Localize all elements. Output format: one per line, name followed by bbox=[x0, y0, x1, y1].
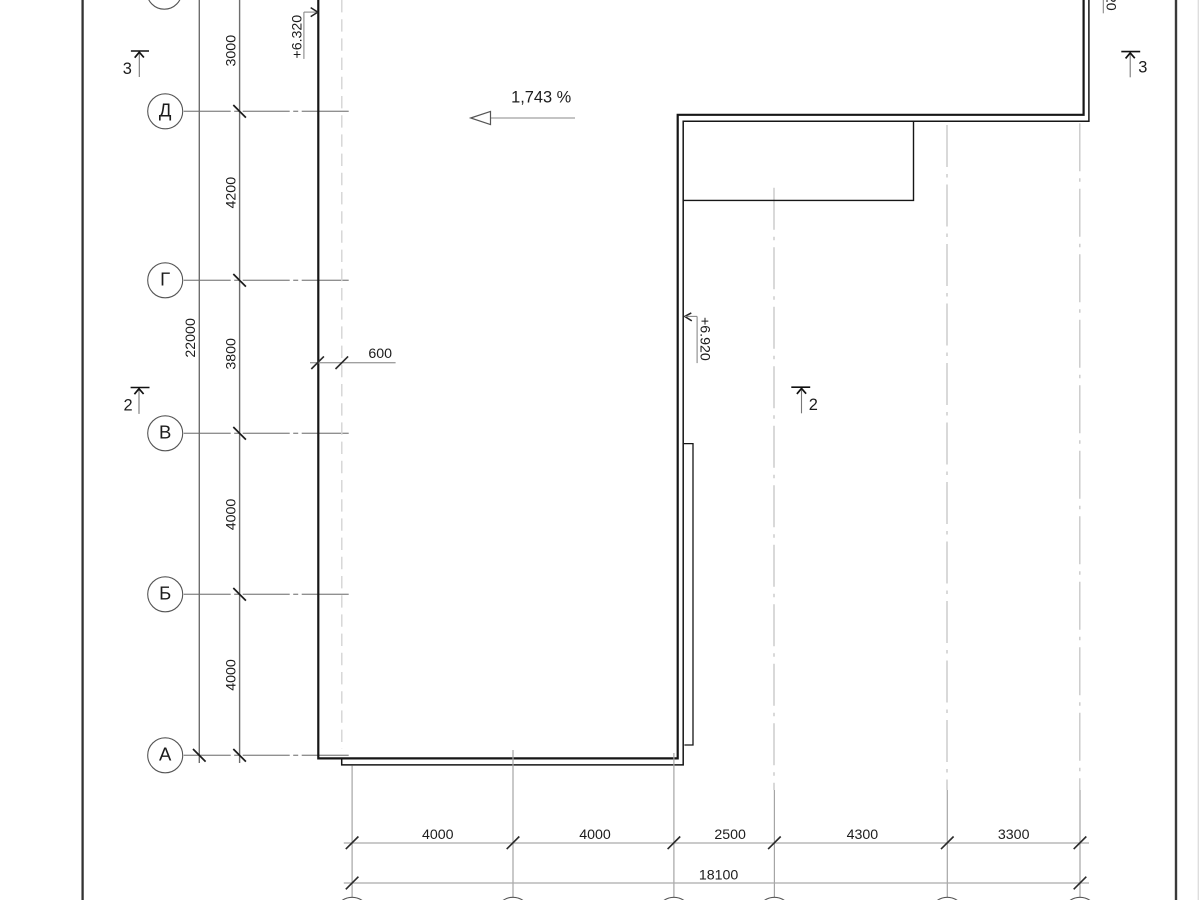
svg-text:2: 2 bbox=[809, 396, 818, 414]
svg-text:4000: 4000 bbox=[223, 659, 239, 691]
svg-text:3000: 3000 bbox=[223, 35, 239, 67]
svg-text:Д: Д bbox=[159, 100, 172, 121]
svg-text:18100: 18100 bbox=[699, 867, 739, 883]
svg-text:А: А bbox=[159, 744, 172, 765]
svg-text:4200: 4200 bbox=[223, 177, 239, 209]
svg-text:4300: 4300 bbox=[847, 827, 879, 843]
svg-text:+6.920: +6.920 bbox=[697, 317, 713, 361]
svg-text:4000: 4000 bbox=[579, 827, 611, 843]
svg-text:3800: 3800 bbox=[223, 338, 239, 370]
svg-text:2: 2 bbox=[123, 397, 132, 415]
svg-text:+6.320: +6.320 bbox=[1103, 0, 1119, 11]
svg-text:600: 600 bbox=[368, 346, 392, 362]
svg-text:4000: 4000 bbox=[223, 499, 239, 531]
svg-text:3: 3 bbox=[1138, 58, 1147, 76]
svg-text:Б: Б bbox=[159, 583, 171, 604]
svg-text:1,743 %: 1,743 % bbox=[511, 88, 571, 106]
svg-text:4000: 4000 bbox=[422, 827, 454, 843]
svg-text:2500: 2500 bbox=[714, 827, 746, 843]
svg-text:В: В bbox=[159, 422, 171, 443]
svg-text:3300: 3300 bbox=[998, 827, 1030, 843]
svg-text:Г: Г bbox=[160, 269, 170, 290]
svg-text:22000: 22000 bbox=[183, 318, 199, 358]
svg-text:+6.320: +6.320 bbox=[290, 15, 306, 59]
svg-text:3: 3 bbox=[123, 60, 132, 78]
